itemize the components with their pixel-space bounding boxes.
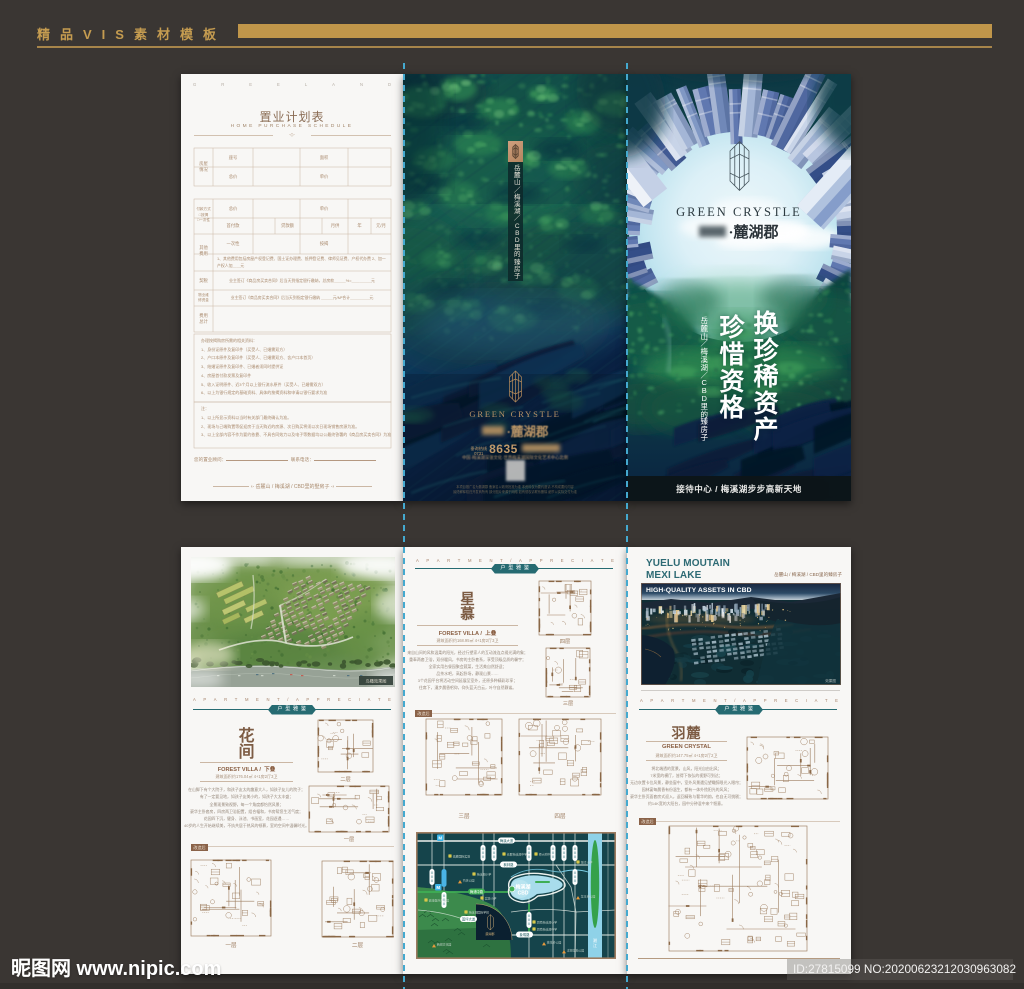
svg-text:梅浦中路: 梅浦中路 <box>470 889 484 894</box>
svg-text:周南梅溪湖中学: 周南梅溪湖中学 <box>537 926 557 931</box>
svg-text:桃花岭公园: 桃花岭公园 <box>547 939 562 944</box>
svg-text:梅溪湖国际学校: 梅溪湖国际学校 <box>469 909 489 914</box>
svg-text:博才小学: 博才小学 <box>581 859 593 864</box>
svg-text:洋湖湿地公园: 洋湖湿地公园 <box>567 947 584 952</box>
svg-text:龙王港公园: 龙王港公园 <box>581 893 596 898</box>
svg-text:莲坪大道: 莲坪大道 <box>462 916 476 921</box>
svg-text:梅溪湖小学: 梅溪湖小学 <box>477 871 492 876</box>
svg-text:M: M <box>438 836 442 841</box>
svg-text:健康医疗产业园: 健康医疗产业园 <box>429 897 449 902</box>
svg-text:象嘴路: 象嘴路 <box>520 932 531 937</box>
svg-text:师大附中: 师大附中 <box>539 851 551 856</box>
svg-text:效果图: 效果图 <box>825 678 836 683</box>
svg-text:岳麓国际实验: 岳麓国际实验 <box>453 853 470 858</box>
svg-text:西湖文化园: 西湖文化园 <box>437 941 452 946</box>
svg-text:梅溪大道: 梅溪大道 <box>500 838 514 843</box>
svg-text:枫林路: 枫林路 <box>504 862 515 867</box>
svg-text:周南梅溪湖小学: 周南梅溪湖小学 <box>537 919 557 924</box>
svg-text:鸟瞰效果图: 鸟瞰效果图 <box>366 678 387 685</box>
svg-text:节庆公园: 节庆公园 <box>463 877 475 882</box>
svg-text:实验小学: 实验小学 <box>485 895 497 900</box>
svg-text:CBD: CBD <box>518 891 529 897</box>
svg-text:麓湖郡: 麓湖郡 <box>485 931 494 936</box>
svg-text:M: M <box>436 885 440 890</box>
svg-text:梅溪湖: 梅溪湖 <box>515 884 530 891</box>
svg-text:江: 江 <box>593 942 597 948</box>
svg-text:长郡梅溪湖中学: 长郡梅溪湖中学 <box>507 851 527 856</box>
